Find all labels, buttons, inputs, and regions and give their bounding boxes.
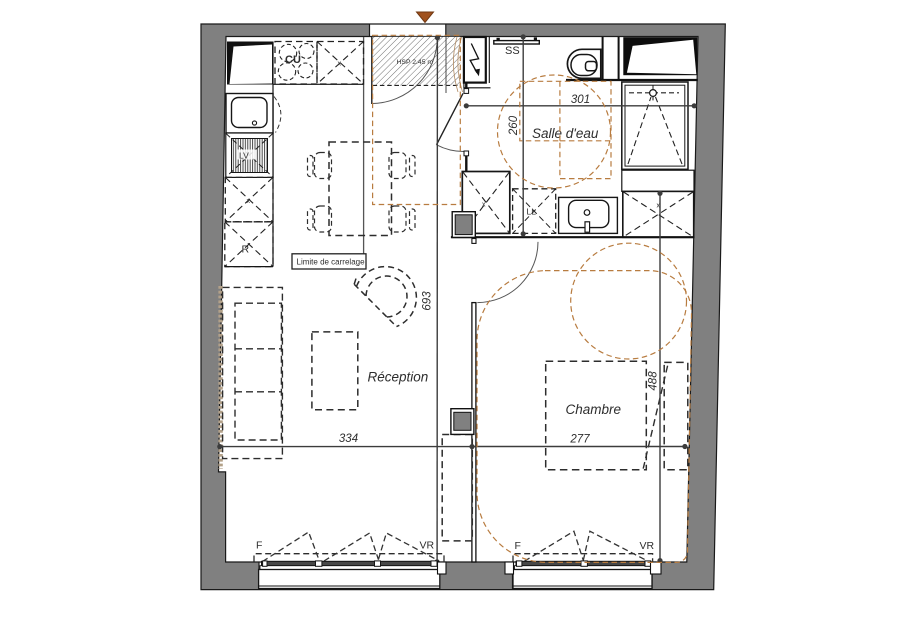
svg-text:VR: VR: [640, 540, 655, 552]
svg-text:x: x: [247, 198, 251, 205]
svg-text:R: R: [242, 244, 250, 256]
svg-text:CU: CU: [285, 54, 301, 66]
svg-text:260: 260: [508, 115, 520, 136]
svg-text:x: x: [482, 202, 486, 209]
svg-text:301: 301: [571, 94, 590, 106]
svg-text:LV: LV: [239, 150, 249, 160]
svg-text:x: x: [338, 61, 342, 68]
svg-text:HSP 2.45 m: HSP 2.45 m: [397, 59, 434, 66]
svg-text:488: 488: [648, 371, 660, 391]
svg-text:693: 693: [422, 291, 434, 311]
svg-text:Limite de carrelage: Limite de carrelage: [297, 258, 366, 267]
svg-text:Réception: Réception: [368, 370, 429, 385]
svg-text:F: F: [256, 540, 262, 552]
svg-text:F: F: [515, 540, 521, 552]
svg-text:334: 334: [339, 433, 358, 445]
svg-text:SS: SS: [505, 45, 520, 57]
svg-text:Chambre: Chambre: [566, 402, 622, 417]
svg-text:LL: LL: [527, 207, 537, 217]
svg-text:Salle d'eau: Salle d'eau: [532, 126, 599, 141]
svg-text:277: 277: [569, 434, 590, 446]
svg-text:VR: VR: [420, 540, 435, 552]
